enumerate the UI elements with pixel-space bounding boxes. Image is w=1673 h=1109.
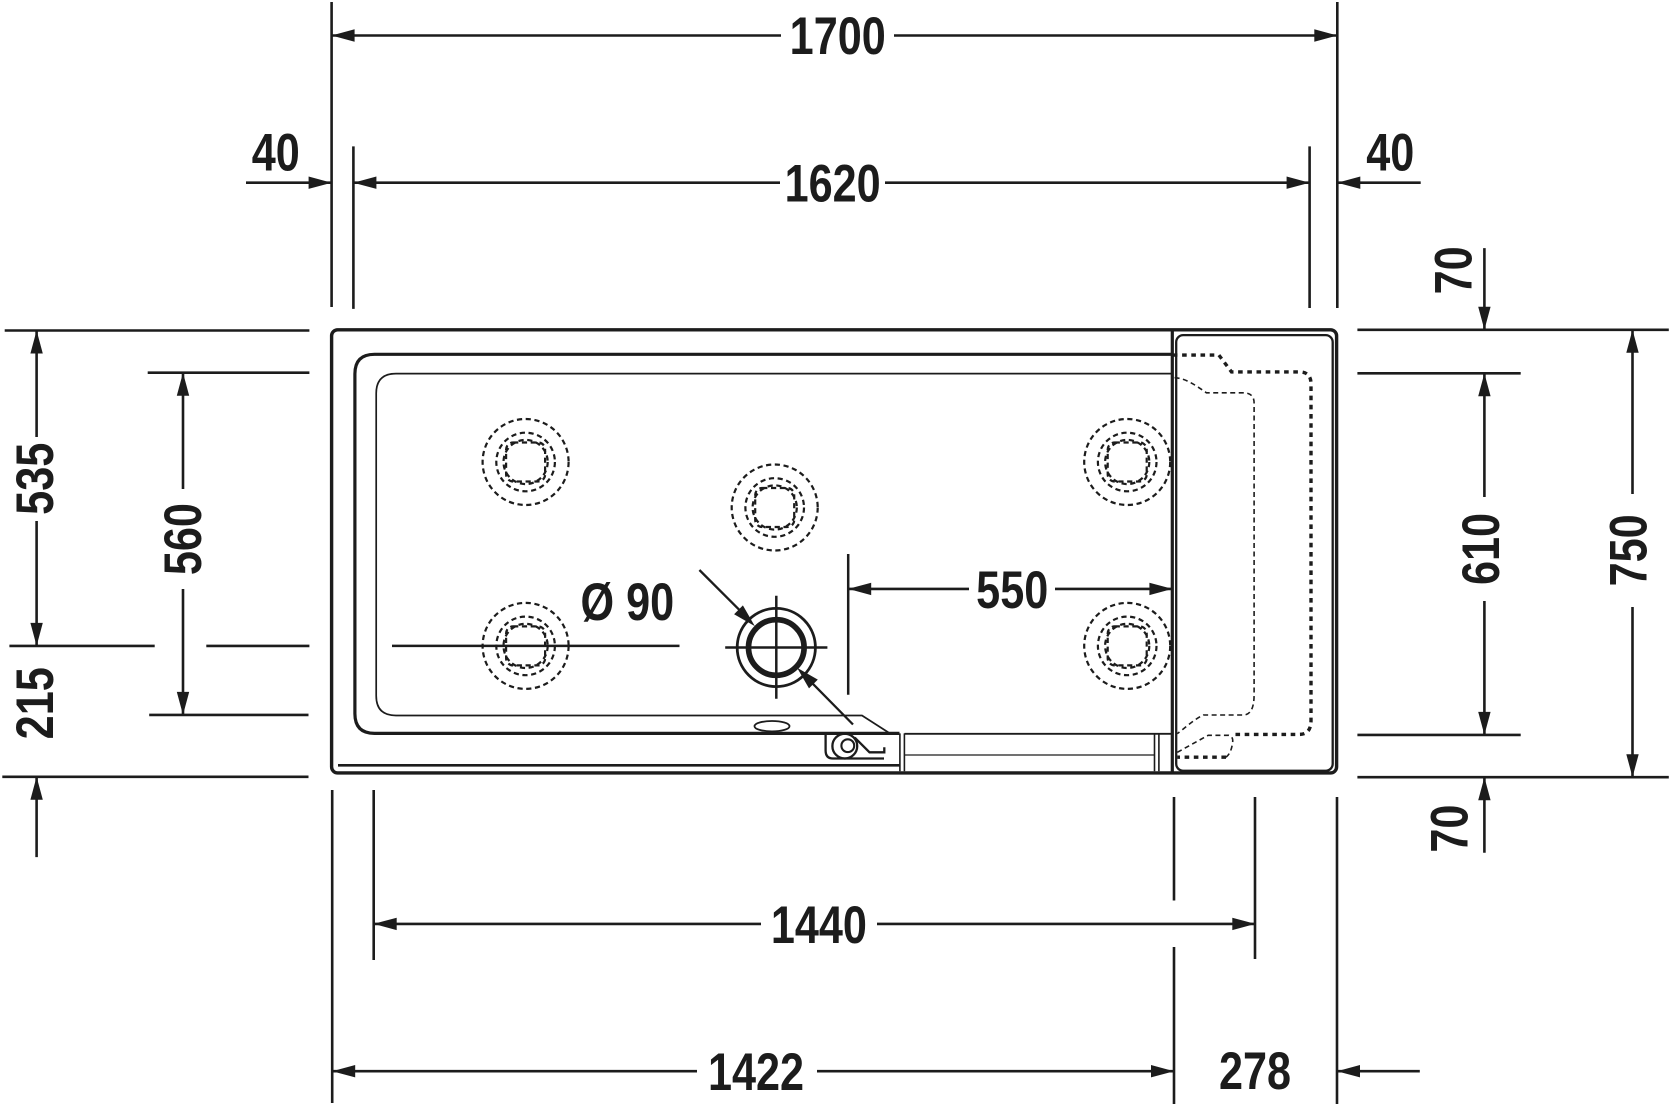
svg-text:1620: 1620	[785, 154, 881, 213]
svg-text:215: 215	[6, 667, 65, 739]
svg-text:40: 40	[252, 123, 300, 182]
svg-text:535: 535	[6, 443, 65, 515]
svg-text:610: 610	[1452, 513, 1511, 585]
svg-text:1440: 1440	[771, 896, 867, 955]
svg-text:1422: 1422	[708, 1043, 804, 1102]
svg-text:550: 550	[976, 561, 1048, 620]
svg-text:750: 750	[1599, 514, 1658, 586]
svg-text:70: 70	[1421, 805, 1480, 853]
svg-text:560: 560	[154, 503, 213, 575]
svg-text:278: 278	[1219, 1042, 1291, 1101]
svg-text:1700: 1700	[790, 7, 886, 66]
svg-text:70: 70	[1424, 246, 1483, 294]
svg-text:Ø 90: Ø 90	[580, 573, 674, 632]
svg-text:40: 40	[1366, 123, 1414, 182]
